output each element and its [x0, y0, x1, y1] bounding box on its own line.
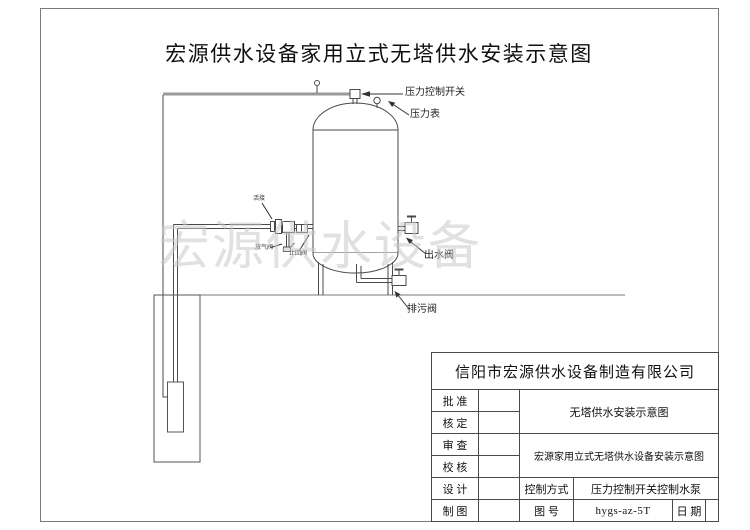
titleblock-blank-cell — [479, 456, 520, 478]
union-leader — [262, 203, 272, 219]
pressure-gauge-label: 压力表 — [410, 110, 440, 120]
date-label: 日 期 — [673, 500, 706, 522]
titleblock-blank-cell — [706, 500, 719, 522]
tank-bottom-dome — [313, 253, 398, 273]
titleblock-blank-cell — [479, 478, 520, 500]
titleblock-label-approve: 批 准 — [432, 390, 479, 412]
titleblock-label-review: 审 查 — [432, 434, 479, 456]
titleblock-label-draft: 制 图 — [432, 500, 479, 522]
tank — [313, 103, 398, 295]
air-valve-icon — [284, 233, 295, 252]
outlet-valve-label: 出水阀 — [424, 251, 454, 261]
pressure-gauge-leader — [391, 103, 409, 115]
doc-title-short: 无塔供水安装示意图 — [520, 390, 719, 434]
control-mode-value: 压力控制开关控制水泵 — [574, 478, 719, 500]
titleblock-label-design: 设 计 — [432, 478, 479, 500]
drawing-no-value: hygs-az-5T — [574, 500, 673, 522]
inlet-pipe — [174, 225, 314, 383]
drain-valve-label: 排污阀 — [407, 305, 437, 315]
drawing-page: 宏源供水设备家用立式无塔供水安装示意图 — [0, 0, 750, 530]
vent-icon — [315, 81, 320, 94]
check-valve-label: 止回阀 — [289, 251, 307, 257]
pressure-switch-icon — [350, 90, 360, 105]
union-icon — [271, 220, 282, 234]
drain-valve-icon — [392, 270, 406, 286]
control-mode-label: 控制方式 — [520, 478, 574, 500]
titleblock-blank-cell — [479, 500, 520, 522]
titleblock-blank-cell — [479, 390, 520, 412]
outlet-valve-icon — [405, 217, 418, 234]
titleblock-blank-cell — [479, 412, 520, 434]
drawing-no-label: 图 号 — [520, 500, 574, 522]
doc-title-full: 宏源家用立式无塔供水设备安装示意图 — [520, 434, 719, 478]
titleblock-label-check: 校 核 — [432, 456, 479, 478]
arrowhead — [388, 101, 395, 107]
pressure-switch-label: 压力控制开关 — [405, 88, 465, 98]
check-valve-leader — [299, 235, 309, 251]
company-name: 信阳市宏源供水设备制造有限公司 — [432, 353, 719, 390]
pump-control-cable — [163, 95, 168, 397]
titleblock-label-verify: 核 定 — [432, 412, 479, 434]
air-valve-label: 放气阀 — [255, 245, 273, 251]
tank-top-dome — [313, 103, 398, 130]
titleblock-blank-cell — [479, 434, 520, 456]
check-valve-icon — [283, 222, 308, 233]
outlet-pipe — [398, 227, 405, 231]
tank-shell — [313, 130, 398, 253]
pump-body — [168, 382, 184, 432]
arrowhead — [361, 91, 370, 97]
union-label: 活接 — [253, 196, 265, 202]
title-block: 信阳市宏源供水设备制造有限公司 批 准 无塔供水安装示意图 核 定 审 查 宏源… — [431, 352, 719, 522]
